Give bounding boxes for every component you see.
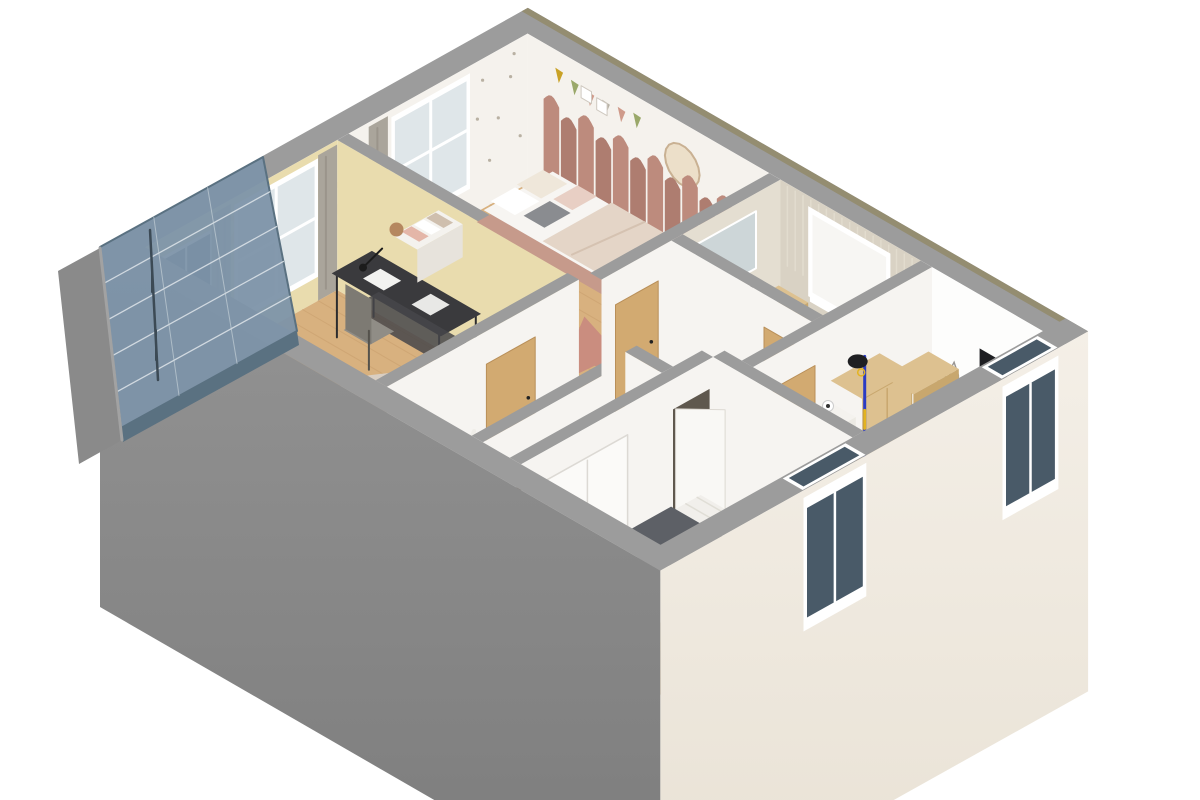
- star-dot: [513, 52, 516, 55]
- star-dot: [509, 75, 512, 78]
- star-dot: [476, 118, 479, 121]
- soccer-ball-patch: [826, 404, 830, 408]
- star-dot: [497, 116, 500, 119]
- star-dot: [481, 79, 484, 82]
- office-curtain-right: [318, 145, 337, 301]
- floor-plan-render: [0, 0, 1200, 800]
- door-handle: [527, 396, 531, 400]
- star-dot: [519, 134, 522, 137]
- star-dot: [488, 159, 491, 162]
- isometric-floor-plan: [0, 0, 1200, 800]
- hoop-backboard: [848, 354, 868, 368]
- doll-house: [390, 223, 404, 237]
- door-handle: [650, 340, 654, 344]
